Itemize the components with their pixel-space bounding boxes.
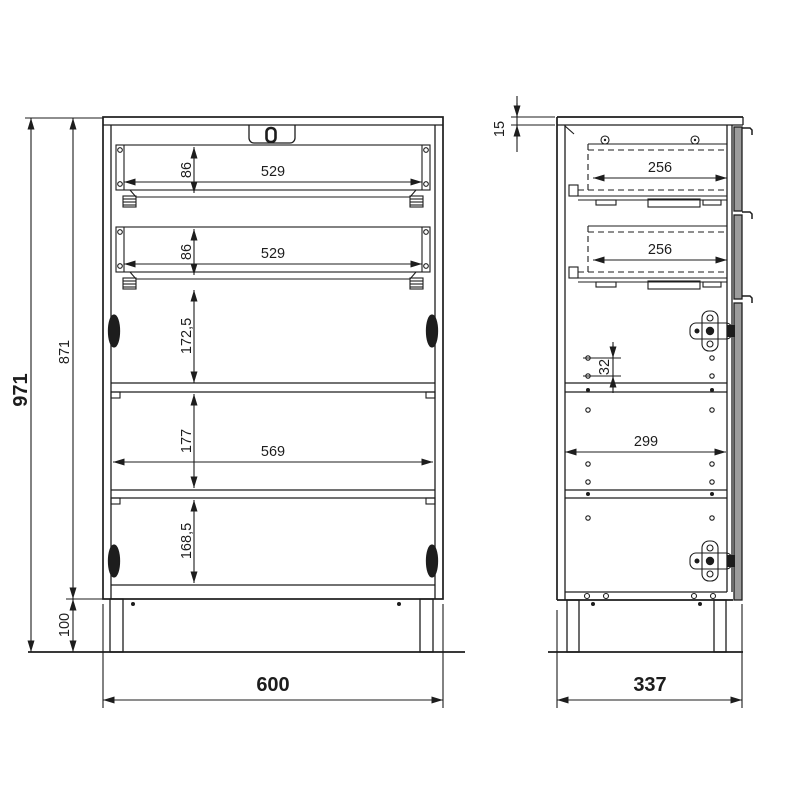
slide-bracket-left bbox=[123, 196, 136, 207]
slide-bracket-right bbox=[410, 278, 423, 289]
dim-label: 168,5 bbox=[179, 523, 195, 559]
drawer2-front-edge bbox=[734, 215, 742, 299]
pin-hole bbox=[710, 516, 714, 520]
dim-label: 100 bbox=[57, 613, 73, 637]
front-shelf-1 bbox=[111, 383, 435, 398]
shelf-pin bbox=[586, 388, 590, 392]
front-carcass bbox=[103, 117, 443, 599]
side-drawer-2: 256 bbox=[569, 226, 727, 289]
hinge-screw bbox=[707, 545, 713, 551]
hinge-mount bbox=[727, 325, 735, 337]
leg-screw bbox=[698, 602, 702, 606]
hook-fitting bbox=[742, 128, 752, 135]
leg bbox=[567, 600, 579, 652]
rail-screw-hole bbox=[118, 182, 123, 187]
hinge-pivot bbox=[706, 557, 714, 565]
hinge-bolt bbox=[695, 559, 700, 564]
front-shelf-2 bbox=[111, 490, 435, 504]
pin-hole bbox=[710, 356, 714, 360]
dim-shelf-hole-pitch: 32 bbox=[583, 342, 621, 393]
pin-hole bbox=[710, 374, 714, 378]
dim-drawer2-width: 529 bbox=[124, 246, 422, 264]
shelf-pin bbox=[710, 492, 714, 496]
rail-screw-hole bbox=[424, 264, 429, 269]
hinge-screw bbox=[707, 315, 713, 321]
dim-leg-height: 100 bbox=[57, 599, 73, 652]
dim-interior-width: 569 bbox=[113, 444, 433, 462]
drawer-back-bracket bbox=[569, 267, 578, 278]
pin-hole bbox=[710, 480, 714, 484]
shelf-support bbox=[426, 392, 435, 398]
dim-carcass-height: 871 bbox=[57, 118, 110, 599]
side-drawer-1: 256 bbox=[569, 136, 727, 207]
dim-label: 32 bbox=[597, 359, 613, 375]
dim-label: 172,5 bbox=[179, 318, 195, 354]
drawer-back-bracket bbox=[569, 185, 578, 196]
hinge-pivot bbox=[706, 327, 714, 335]
slide-bracket-left bbox=[123, 278, 136, 289]
slide-tab bbox=[703, 282, 721, 287]
bottom-hole bbox=[585, 594, 590, 599]
dim-opening2-height: 177 bbox=[179, 394, 195, 488]
drawer-bottom-strip bbox=[130, 272, 416, 279]
drawer-screw-center bbox=[694, 139, 696, 141]
slide-bracket-right bbox=[410, 196, 423, 207]
dim-label: 86 bbox=[179, 162, 195, 178]
side-legs bbox=[567, 600, 726, 652]
dim-label: 569 bbox=[261, 444, 285, 460]
hinge-screw bbox=[707, 571, 713, 577]
shelf-support bbox=[426, 498, 435, 504]
door-hinge-top bbox=[690, 311, 735, 351]
front-legs bbox=[110, 599, 433, 652]
drawer-bottom-strip bbox=[130, 190, 416, 197]
dim-label: 529 bbox=[261, 164, 285, 180]
dim-drawer1-height: 86 bbox=[179, 147, 195, 193]
rail-screw-hole bbox=[424, 148, 429, 153]
dim-drawer1-depth: 256 bbox=[593, 160, 727, 178]
technical-drawing: 86 529 86 529 172,5 bbox=[0, 0, 800, 800]
dim-label: 971 bbox=[10, 373, 32, 406]
side-view: 256 256 bbox=[492, 96, 752, 708]
rail-screw-hole bbox=[424, 230, 429, 235]
dim-drawer2-depth: 256 bbox=[593, 242, 727, 260]
dim-overall-width: 600 bbox=[103, 604, 443, 708]
rail-screw-hole bbox=[118, 230, 123, 235]
dim-overall-height: 971 bbox=[10, 118, 103, 652]
dim-opening3-height: 168,5 bbox=[179, 500, 195, 583]
rail-screw-hole bbox=[118, 148, 123, 153]
pin-hole bbox=[586, 516, 590, 520]
carcass-outline bbox=[103, 117, 443, 599]
leg-screw bbox=[591, 602, 595, 606]
shelf-pin bbox=[710, 388, 714, 392]
dim-label: 177 bbox=[179, 429, 195, 453]
drawer-screw-center bbox=[604, 139, 606, 141]
hook-fitting bbox=[742, 296, 752, 303]
door-front-edge bbox=[734, 303, 742, 600]
leg bbox=[110, 599, 123, 652]
dim-label: 256 bbox=[648, 242, 672, 258]
bottom-hole bbox=[711, 594, 716, 599]
dim-label: 871 bbox=[57, 340, 73, 364]
pin-hole bbox=[586, 408, 590, 412]
shelf-support bbox=[111, 392, 120, 398]
dim-top-panel-thickness: 15 bbox=[492, 96, 555, 152]
dim-label: 600 bbox=[256, 674, 289, 696]
hinge-screw bbox=[707, 341, 713, 347]
side-front-panels bbox=[734, 127, 742, 600]
hinge-cup bbox=[427, 545, 438, 577]
dim-label: 299 bbox=[634, 434, 658, 450]
slide-tab bbox=[596, 200, 616, 205]
dim-label: 529 bbox=[261, 246, 285, 262]
dim-label: 256 bbox=[648, 160, 672, 176]
slide-tab bbox=[703, 200, 721, 205]
bottom-hole bbox=[604, 594, 609, 599]
leg bbox=[420, 599, 433, 652]
side-dimensions: 15 32 299 337 bbox=[492, 96, 742, 708]
slide-tab bbox=[596, 282, 616, 287]
drawer1-front-edge bbox=[734, 127, 742, 211]
front-view: 86 529 86 529 172,5 bbox=[10, 117, 465, 708]
hinge-mount bbox=[727, 555, 735, 567]
pin-hole bbox=[710, 408, 714, 412]
pin-hole bbox=[586, 480, 590, 484]
dim-interior-depth: 299 bbox=[565, 434, 726, 452]
dim-label: 15 bbox=[492, 121, 508, 137]
dim-label: 337 bbox=[633, 674, 666, 696]
hinge-cup bbox=[427, 315, 438, 347]
hinge-bolt bbox=[695, 329, 700, 334]
front-panel-hooks bbox=[742, 128, 752, 303]
shelf-support bbox=[111, 498, 120, 504]
hinge-cup bbox=[109, 315, 120, 347]
dim-opening1-height: 172,5 bbox=[179, 290, 195, 383]
dim-drawer1-width: 529 bbox=[124, 164, 422, 182]
side-shelf-1 bbox=[565, 383, 727, 392]
rail-screw-hole bbox=[118, 264, 123, 269]
pin-hole bbox=[710, 462, 714, 466]
pin-hole bbox=[586, 462, 590, 466]
dim-drawer2-height: 86 bbox=[179, 229, 195, 275]
hinge-cup bbox=[109, 545, 120, 577]
leg-screw bbox=[131, 602, 135, 606]
dim-label: 86 bbox=[179, 244, 195, 260]
drawing-root: 86 529 86 529 172,5 bbox=[10, 96, 752, 708]
rail-screw-hole bbox=[424, 182, 429, 187]
hook-fitting bbox=[742, 212, 752, 219]
shelf-pin bbox=[586, 492, 590, 496]
side-shelf-2 bbox=[565, 490, 727, 498]
door-hinge-bottom bbox=[690, 541, 735, 581]
bottom-hole bbox=[692, 594, 697, 599]
corner-chamfer bbox=[565, 126, 574, 134]
lock-slot bbox=[267, 128, 276, 142]
leg bbox=[714, 600, 726, 652]
leg-screw bbox=[397, 602, 401, 606]
front-dimensions: 86 529 86 529 172,5 bbox=[10, 118, 443, 708]
